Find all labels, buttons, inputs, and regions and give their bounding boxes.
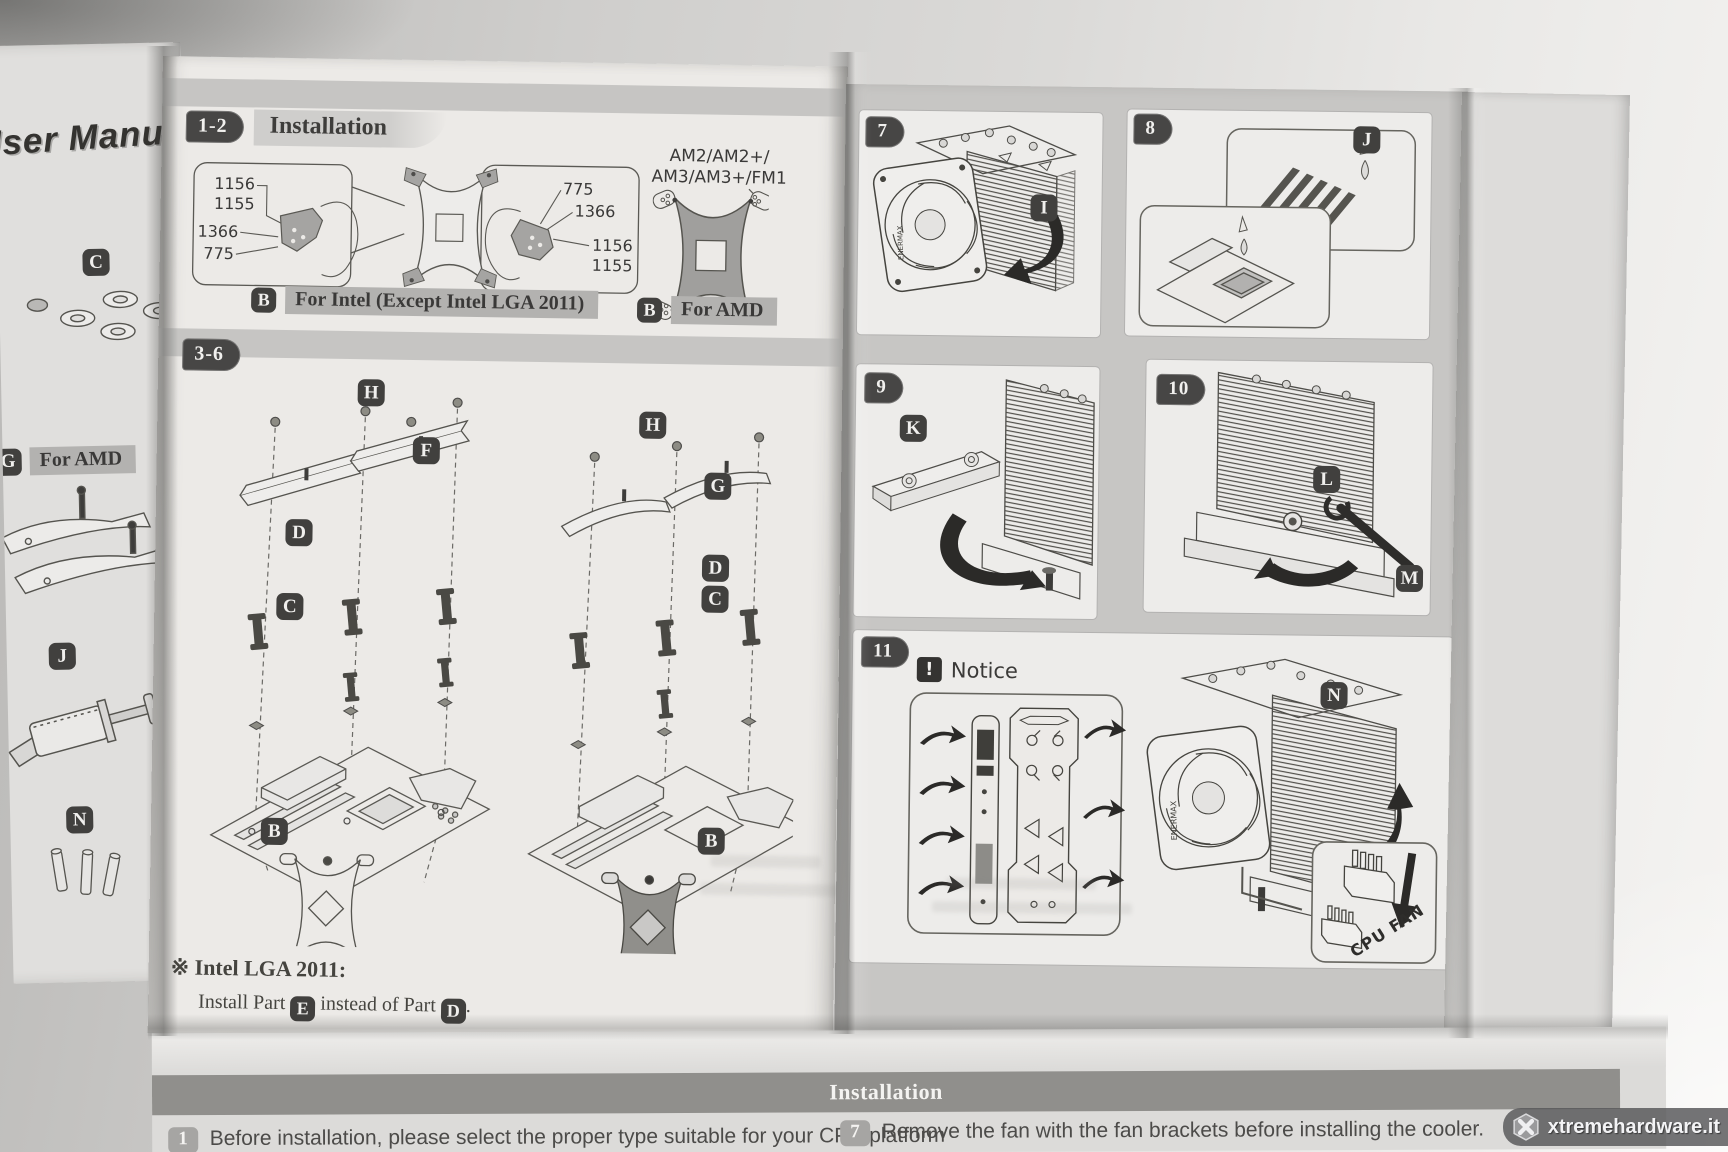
part-badge-c: C <box>701 586 728 613</box>
page-band-middle <box>158 328 843 367</box>
socket-label: 1156 <box>214 174 255 194</box>
fan: ENERMAX <box>1145 724 1271 871</box>
socket-label: 775 <box>203 244 234 263</box>
note-text: . <box>466 995 471 1017</box>
step-9-number: 9 <box>864 372 903 403</box>
fan-bracket-rail <box>970 716 1000 924</box>
print-bleed-through <box>946 877 1096 890</box>
socket-label: 1156 <box>592 236 633 256</box>
watermark-site-text: xtremehardware.it <box>1548 1116 1720 1139</box>
step-8-number: 8 <box>1133 114 1172 145</box>
part-badge-b: B <box>637 297 662 322</box>
notice-label: Notice <box>951 658 1018 683</box>
fan-brand-text: ENERMAX <box>896 225 905 260</box>
print-bleed-through <box>700 883 840 897</box>
instruction-1-number: 1 <box>168 1127 198 1152</box>
socket-label: 1366 <box>197 222 238 242</box>
exploded-install-diagram-intel <box>187 363 501 950</box>
section-1-2-badge: 1-2 <box>186 110 244 143</box>
instruction-1-text: Before installation, please select the p… <box>210 1124 945 1151</box>
step-7-panel: ENERMAX 7 I <box>857 110 1103 337</box>
intel-caption: B For Intel (Except Intel LGA 2011) <box>251 285 598 318</box>
part-badge-l: L <box>1313 466 1340 493</box>
print-bleed-through <box>710 855 820 869</box>
part-badge-k: K <box>900 415 927 442</box>
thermal-paste-syringe-illustration <box>0 663 165 787</box>
step-8-illustration <box>1125 109 1432 339</box>
part-badge-h: H <box>639 412 666 439</box>
photographed-user-manual: User Manual C G For AMD J <box>0 0 1728 1152</box>
step-11-number: 11 <box>861 636 909 668</box>
fan: ENERMAX <box>872 156 989 293</box>
fan-brand-text: ENERMAX <box>1169 800 1179 840</box>
instruction-item-7: 7 Remove the fan with the fan brackets b… <box>840 1117 1484 1146</box>
intel-backplate-diagram: 1156 1155 1366 775 775 1366 1156 1155 <box>189 152 643 299</box>
part-badge-c: C <box>276 593 303 620</box>
fold-crease-highlight <box>152 1027 1666 1074</box>
part-badge-g: G <box>0 448 22 476</box>
part-badge-d: D <box>702 555 729 582</box>
amd-platform-line1: AM2/AM2+/ <box>639 145 799 169</box>
socket-label: 1155 <box>214 194 255 214</box>
part-badge-n: N <box>1320 682 1347 709</box>
intel-backplate <box>403 168 498 288</box>
part-badge-n: N <box>66 806 94 834</box>
socket-label: 1155 <box>592 256 633 276</box>
part-badge-i: I <box>1030 194 1057 221</box>
for-amd-tag: For AMD <box>29 445 136 475</box>
bottom-page-fold: Installation 1 Before installation, plea… <box>152 1027 1667 1152</box>
mounting-bar <box>873 450 1000 512</box>
part-badge-d: D <box>285 519 312 546</box>
step-10-panel: 10 L M <box>1144 360 1433 615</box>
washers-illustration <box>25 280 176 353</box>
heatsink-fins <box>1004 380 1094 565</box>
part-badge-j: J <box>1353 126 1380 153</box>
part-badge-b: B <box>698 827 725 854</box>
step-7-number: 7 <box>865 116 904 147</box>
instruction-item-1: 1 Before installation, please select the… <box>168 1124 945 1152</box>
part-badge-d: D <box>441 998 466 1023</box>
step-11-panel: ENERMAX CPU FAN 11 ! N <box>849 630 1453 969</box>
amd-caption: B For AMD <box>637 295 778 325</box>
watermark-banner: xtremehardware.it <box>1503 1108 1728 1146</box>
part-badge-e: E <box>290 996 315 1021</box>
xtremehardware-logo-icon <box>1512 1113 1540 1141</box>
exploded-install-diagram-amd <box>521 392 800 956</box>
part-badge-b: B <box>251 287 276 312</box>
lga2011-note-heading: ※ Intel LGA 2011: <box>170 954 346 983</box>
fan-bracket-plate <box>1008 708 1079 923</box>
notice-heading: ! Notice <box>917 657 1018 683</box>
note-text: Install Part <box>198 991 286 1014</box>
instruction-7-number: 7 <box>840 1120 870 1146</box>
section-1-2-header: 1-2 Installation <box>186 108 448 148</box>
installation-heading-band: Installation <box>253 109 447 148</box>
for-amd-tag: For AMD <box>671 296 778 326</box>
amd-platform-label: AM2/AM2+/ AM3/AM3+/FM1 <box>639 145 800 190</box>
cover-amd-caption: G For AMD <box>0 445 136 476</box>
part-badge-h: H <box>358 379 385 406</box>
installation-bar-title: Installation <box>829 1079 943 1105</box>
page-installation-steps: ENERMAX 7 I <box>834 84 1468 1042</box>
part-badge-g: G <box>704 473 731 500</box>
rubber-mounts-illustration <box>41 835 143 917</box>
step-9-panel: 9 K <box>853 364 1099 619</box>
note-text: instead of Part <box>320 993 436 1017</box>
for-intel-tag: For Intel (Except Intel LGA 2011) <box>285 286 598 319</box>
part-badge-m: M <box>1396 565 1423 592</box>
socket-label: 775 <box>563 179 594 198</box>
installation-heading: Installation <box>269 113 387 141</box>
step-8-panel: 8 J <box>1125 109 1432 339</box>
instruction-7-text: Remove the fan with the fan brackets bef… <box>882 1117 1484 1144</box>
part-badge-c: C <box>82 249 110 277</box>
page-installation-setup: 1-2 Installation 1156 1155 1366 775 <box>148 56 848 1044</box>
socket-label: 1366 <box>574 201 615 221</box>
lga2011-note-line: Install Part E instead of Part D. <box>198 991 471 1024</box>
step-10-number: 10 <box>1156 374 1205 406</box>
part-badge-b: B <box>261 818 288 845</box>
backplate-corner-clip <box>280 208 323 252</box>
exclamation-icon: ! <box>917 657 942 682</box>
blank-page-margin <box>1444 92 1630 1037</box>
part-badge-f: F <box>413 437 440 464</box>
installation-section-bar: Installation <box>152 1069 1620 1115</box>
